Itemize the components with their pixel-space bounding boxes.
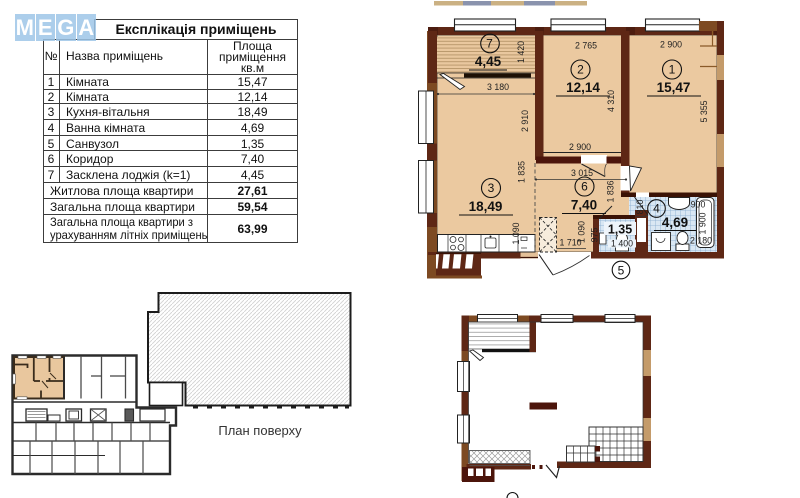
svg-text:4 310: 4 310 [606, 90, 616, 112]
svg-text:1: 1 [669, 63, 676, 77]
svg-text:1 400: 1 400 [611, 239, 633, 249]
svg-text:1,35: 1,35 [608, 223, 632, 237]
svg-text:1 090: 1 090 [577, 221, 587, 243]
svg-text:1 420: 1 420 [516, 41, 526, 63]
svg-text:7,40: 7,40 [571, 198, 597, 213]
svg-text:12,14: 12,14 [566, 80, 600, 95]
svg-text:5 355: 5 355 [699, 100, 709, 122]
svg-text:1 835: 1 835 [517, 161, 527, 183]
svg-text:1 090: 1 090 [511, 222, 521, 244]
svg-text:810: 810 [635, 200, 645, 215]
svg-text:900: 900 [691, 200, 706, 210]
svg-text:1 836: 1 836 [606, 180, 616, 202]
svg-text:2: 2 [577, 63, 584, 77]
svg-text:2 900: 2 900 [660, 40, 682, 50]
svg-text:2 765: 2 765 [575, 41, 597, 51]
svg-text:2 900: 2 900 [569, 142, 591, 152]
svg-text:1 900: 1 900 [698, 212, 708, 234]
svg-text:7: 7 [486, 37, 493, 51]
svg-text:18,49: 18,49 [469, 199, 503, 214]
svg-text:3 015: 3 015 [571, 168, 593, 178]
svg-text:3 180: 3 180 [487, 82, 509, 92]
svg-text:4,45: 4,45 [475, 54, 502, 69]
svg-text:2 910: 2 910 [520, 110, 530, 132]
svg-text:3: 3 [488, 181, 495, 195]
svg-text:2 180: 2 180 [690, 236, 712, 246]
svg-text:4,69: 4,69 [662, 215, 688, 230]
svg-text:975: 975 [590, 228, 600, 243]
svg-text:6: 6 [581, 180, 588, 194]
svg-text:4: 4 [653, 202, 660, 216]
svg-text:15,47: 15,47 [657, 80, 691, 95]
svg-text:5: 5 [618, 263, 625, 277]
